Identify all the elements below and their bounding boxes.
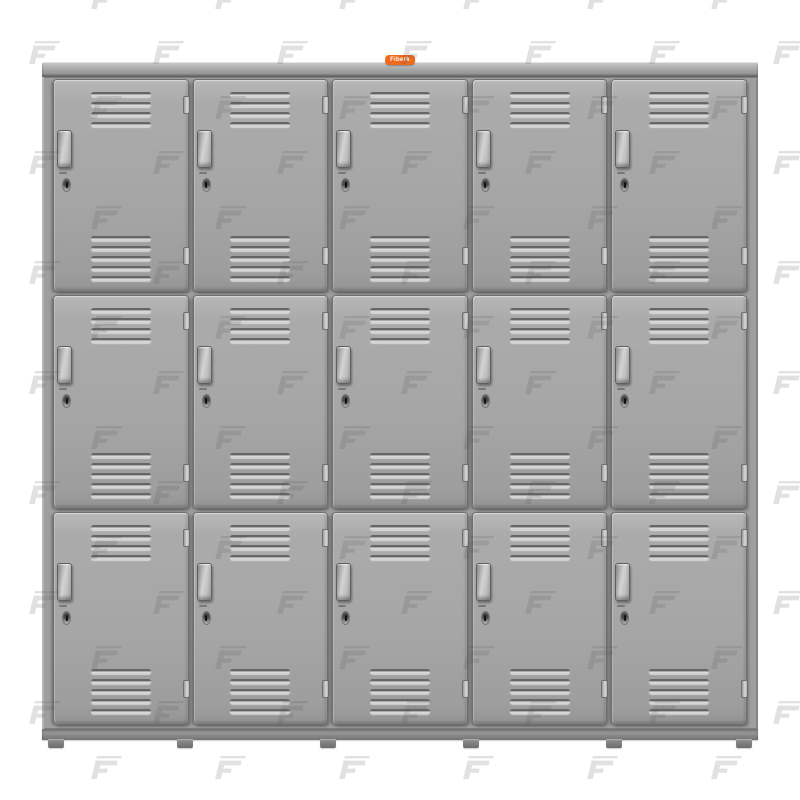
vent-slot — [91, 669, 151, 674]
door-handle — [336, 346, 351, 384]
vent-slot — [510, 689, 570, 694]
top-vent-grille — [91, 92, 151, 127]
vent-slot — [370, 535, 430, 540]
brand-f-watermark-icon — [211, 0, 249, 9]
top-vent-grille — [649, 92, 709, 127]
vent-slot — [91, 246, 151, 251]
vent-slot — [370, 276, 430, 281]
door-handle — [476, 130, 491, 168]
locker-product-photo: Fiberk — [0, 0, 800, 800]
door-handle — [336, 563, 351, 601]
door-hinge — [462, 464, 469, 482]
door-hinge — [601, 464, 608, 482]
door-hinge — [183, 247, 190, 265]
brand-f-watermark-icon — [0, 316, 1, 339]
vent-slot — [370, 338, 430, 343]
vent-slot — [370, 679, 430, 684]
brand-f-watermark-icon — [335, 0, 373, 9]
top-vent-grille — [510, 92, 570, 127]
vent-slot — [230, 256, 290, 261]
door-hinge — [322, 680, 329, 698]
vent-slot — [370, 102, 430, 107]
brand-f-watermark-icon — [87, 756, 125, 779]
locker-door — [54, 80, 188, 291]
vent-slot — [91, 473, 151, 478]
vent-slot — [370, 709, 430, 714]
vent-slot — [649, 453, 709, 458]
bottom-vent-grille — [649, 453, 709, 498]
vent-slot — [91, 689, 151, 694]
locker-door — [333, 513, 467, 724]
door-handle — [57, 346, 72, 384]
locker-foot — [320, 739, 336, 748]
locker-doors-grid — [42, 77, 758, 729]
door-handle — [476, 563, 491, 601]
vent-slot — [370, 525, 430, 530]
door-handle — [615, 346, 630, 384]
vent-slot — [91, 102, 151, 107]
vent-slot — [230, 122, 290, 127]
door-hinge — [322, 529, 329, 547]
door-hinge — [601, 96, 608, 114]
vent-slot — [91, 328, 151, 333]
vent-slot — [510, 338, 570, 343]
vent-slot — [510, 246, 570, 251]
locker-door — [473, 80, 607, 291]
locker-door — [612, 296, 746, 507]
door-handle — [615, 563, 630, 601]
vent-slot — [510, 525, 570, 530]
vent-slot — [649, 112, 709, 117]
vent-slot — [649, 256, 709, 261]
keyhole-lock — [341, 394, 350, 408]
door-hinge — [741, 247, 748, 265]
vent-slot — [649, 669, 709, 674]
vent-slot — [230, 669, 290, 674]
bottom-vent-grille — [91, 669, 151, 714]
top-vent-grille — [230, 92, 290, 127]
top-vent-grille — [91, 525, 151, 560]
door-hinge — [741, 312, 748, 330]
locker-foot — [606, 739, 622, 748]
vent-slot — [91, 276, 151, 281]
brand-f-watermark-icon — [335, 756, 373, 779]
vent-slot — [649, 122, 709, 127]
bottom-vent-grille — [510, 453, 570, 498]
vent-slot — [649, 699, 709, 704]
vent-slot — [370, 112, 430, 117]
vent-slot — [510, 555, 570, 560]
vent-slot — [370, 453, 430, 458]
vent-slot — [91, 463, 151, 468]
vent-slot — [370, 463, 430, 468]
vent-slot — [91, 453, 151, 458]
brand-f-watermark-icon — [0, 206, 1, 229]
vent-slot — [91, 679, 151, 684]
door-hinge — [183, 680, 190, 698]
vent-slot — [649, 236, 709, 241]
vent-slot — [510, 92, 570, 97]
bottom-vent-grille — [370, 236, 430, 281]
vent-slot — [510, 545, 570, 550]
vent-slot — [510, 266, 570, 271]
brand-f-watermark-icon — [769, 261, 800, 284]
brand-f-watermark-icon — [769, 151, 800, 174]
brand-f-watermark-icon — [0, 0, 1, 9]
vent-slot — [91, 236, 151, 241]
keyhole-lock — [481, 611, 490, 625]
vent-slot — [230, 328, 290, 333]
door-hinge — [741, 464, 748, 482]
locker-door — [333, 296, 467, 507]
vent-slot — [230, 525, 290, 530]
vent-slot — [91, 555, 151, 560]
door-hinge — [462, 680, 469, 698]
vent-slot — [230, 545, 290, 550]
brand-f-watermark-icon — [769, 41, 800, 64]
locker-door — [54, 296, 188, 507]
locker-foot — [463, 739, 479, 748]
vent-slot — [370, 92, 430, 97]
door-hinge — [462, 247, 469, 265]
brand-f-watermark-icon — [0, 536, 1, 559]
door-handle — [197, 563, 212, 601]
keyhole-lock — [481, 394, 490, 408]
vent-slot — [370, 246, 430, 251]
vent-slot — [649, 276, 709, 281]
keyhole-lock — [481, 178, 490, 192]
brand-f-watermark-icon — [769, 701, 800, 724]
locker-door — [473, 296, 607, 507]
door-hinge — [322, 464, 329, 482]
top-vent-grille — [510, 525, 570, 560]
vent-slot — [510, 308, 570, 313]
brand-f-watermark-icon — [583, 756, 621, 779]
vent-slot — [510, 112, 570, 117]
vent-slot — [370, 699, 430, 704]
vent-slot — [230, 102, 290, 107]
vent-slot — [510, 453, 570, 458]
brand-f-watermark-icon — [459, 756, 497, 779]
door-handle — [197, 130, 212, 168]
vent-slot — [649, 709, 709, 714]
vent-slot — [230, 699, 290, 704]
vent-slot — [91, 266, 151, 271]
vent-slot — [649, 483, 709, 488]
bottom-vent-grille — [230, 453, 290, 498]
vent-slot — [510, 493, 570, 498]
brand-f-watermark-icon — [211, 756, 249, 779]
vent-slot — [230, 689, 290, 694]
vent-slot — [230, 246, 290, 251]
vent-slot — [370, 689, 430, 694]
brand-f-watermark-icon — [707, 756, 745, 779]
vent-slot — [649, 308, 709, 313]
locker-door — [612, 80, 746, 291]
vent-slot — [370, 669, 430, 674]
top-vent-grille — [370, 525, 430, 560]
brand-f-watermark-icon — [87, 0, 125, 9]
vent-slot — [649, 92, 709, 97]
vent-slot — [649, 545, 709, 550]
vent-slot — [370, 308, 430, 313]
vent-slot — [510, 328, 570, 333]
door-hinge — [462, 312, 469, 330]
brand-f-watermark-icon — [769, 591, 800, 614]
brand-f-watermark-icon — [0, 646, 1, 669]
vent-slot — [230, 473, 290, 478]
keyhole-lock — [202, 394, 211, 408]
locker-unit: Fiberk — [42, 60, 758, 752]
bottom-vent-grille — [510, 236, 570, 281]
brand-f-watermark-icon — [707, 0, 745, 9]
brand-badge: Fiberk — [385, 55, 415, 65]
vent-slot — [370, 236, 430, 241]
door-hinge — [183, 96, 190, 114]
vent-slot — [230, 453, 290, 458]
vent-slot — [370, 545, 430, 550]
top-vent-grille — [230, 308, 290, 343]
bottom-vent-grille — [230, 669, 290, 714]
vent-slot — [370, 483, 430, 488]
vent-slot — [230, 338, 290, 343]
vent-slot — [91, 92, 151, 97]
vent-slot — [370, 493, 430, 498]
vent-slot — [649, 246, 709, 251]
door-hinge — [601, 247, 608, 265]
keyhole-lock — [202, 611, 211, 625]
door-hinge — [322, 96, 329, 114]
keyhole-lock — [620, 611, 629, 625]
vent-slot — [649, 328, 709, 333]
brand-f-watermark-icon — [769, 371, 800, 394]
locker-base-rail — [42, 729, 758, 740]
door-handle — [615, 130, 630, 168]
bottom-vent-grille — [91, 453, 151, 498]
vent-slot — [370, 318, 430, 323]
vent-slot — [510, 256, 570, 261]
vent-slot — [510, 463, 570, 468]
vent-slot — [510, 709, 570, 714]
locker-door — [333, 80, 467, 291]
vent-slot — [370, 122, 430, 127]
vent-slot — [370, 328, 430, 333]
door-handle — [336, 130, 351, 168]
door-hinge — [462, 529, 469, 547]
vent-slot — [370, 555, 430, 560]
bottom-vent-grille — [510, 669, 570, 714]
vent-slot — [91, 483, 151, 488]
locker-door — [54, 513, 188, 724]
door-handle — [57, 563, 72, 601]
keyhole-lock — [341, 178, 350, 192]
vent-slot — [91, 122, 151, 127]
door-hinge — [322, 247, 329, 265]
vent-slot — [230, 236, 290, 241]
vent-slot — [510, 535, 570, 540]
brand-f-watermark-icon — [583, 0, 621, 9]
keyhole-lock — [62, 394, 71, 408]
top-vent-grille — [510, 308, 570, 343]
vent-slot — [230, 318, 290, 323]
vent-slot — [230, 535, 290, 540]
vent-slot — [91, 256, 151, 261]
keyhole-lock — [62, 611, 71, 625]
vent-slot — [649, 102, 709, 107]
vent-slot — [230, 463, 290, 468]
vent-slot — [649, 338, 709, 343]
door-hinge — [601, 680, 608, 698]
vent-slot — [91, 318, 151, 323]
vent-slot — [510, 236, 570, 241]
brand-f-watermark-icon — [459, 0, 497, 9]
vent-slot — [649, 525, 709, 530]
top-vent-grille — [230, 525, 290, 560]
locker-foot — [736, 739, 752, 748]
door-hinge — [741, 529, 748, 547]
vent-slot — [230, 276, 290, 281]
locker-foot — [177, 739, 193, 748]
vent-slot — [91, 308, 151, 313]
vent-slot — [510, 276, 570, 281]
vent-slot — [510, 102, 570, 107]
vent-slot — [510, 699, 570, 704]
door-hinge — [601, 312, 608, 330]
vent-slot — [510, 679, 570, 684]
vent-slot — [649, 555, 709, 560]
vent-slot — [649, 493, 709, 498]
door-hinge — [183, 312, 190, 330]
vent-slot — [510, 122, 570, 127]
vent-slot — [510, 318, 570, 323]
top-vent-grille — [370, 308, 430, 343]
vent-slot — [649, 463, 709, 468]
vent-slot — [510, 669, 570, 674]
bottom-vent-grille — [91, 236, 151, 281]
vent-slot — [649, 318, 709, 323]
vent-slot — [649, 679, 709, 684]
door-hinge — [322, 312, 329, 330]
vent-slot — [510, 483, 570, 488]
top-vent-grille — [649, 525, 709, 560]
vent-slot — [230, 493, 290, 498]
vent-slot — [230, 266, 290, 271]
vent-slot — [230, 112, 290, 117]
vent-slot — [230, 483, 290, 488]
vent-slot — [649, 689, 709, 694]
door-hinge — [741, 96, 748, 114]
locker-door — [194, 80, 328, 291]
door-hinge — [462, 96, 469, 114]
keyhole-lock — [620, 394, 629, 408]
brand-f-watermark-icon — [0, 756, 1, 779]
locker-door — [473, 513, 607, 724]
vent-slot — [230, 555, 290, 560]
bottom-vent-grille — [370, 669, 430, 714]
vent-slot — [230, 92, 290, 97]
door-handle — [197, 346, 212, 384]
door-hinge — [183, 464, 190, 482]
vent-slot — [91, 545, 151, 550]
door-hinge — [741, 680, 748, 698]
vent-slot — [649, 266, 709, 271]
door-handle — [57, 130, 72, 168]
bottom-vent-grille — [649, 669, 709, 714]
locker-foot — [48, 739, 64, 748]
keyhole-lock — [620, 178, 629, 192]
vent-slot — [230, 308, 290, 313]
door-hinge — [183, 529, 190, 547]
locker-door — [194, 296, 328, 507]
brand-f-watermark-icon — [0, 96, 1, 119]
vent-slot — [91, 699, 151, 704]
vent-slot — [370, 473, 430, 478]
vent-slot — [370, 266, 430, 271]
top-vent-grille — [91, 308, 151, 343]
brand-badge-label: Fiberk — [390, 57, 410, 63]
top-vent-grille — [370, 92, 430, 127]
vent-slot — [649, 535, 709, 540]
bottom-vent-grille — [649, 236, 709, 281]
vent-slot — [91, 493, 151, 498]
keyhole-lock — [341, 611, 350, 625]
locker-door — [612, 513, 746, 724]
bottom-vent-grille — [370, 453, 430, 498]
brand-f-watermark-icon — [769, 481, 800, 504]
keyhole-lock — [62, 178, 71, 192]
vent-slot — [370, 256, 430, 261]
door-hinge — [601, 529, 608, 547]
locker-door — [194, 513, 328, 724]
vent-slot — [91, 709, 151, 714]
vent-slot — [230, 679, 290, 684]
door-handle — [476, 346, 491, 384]
vent-slot — [91, 525, 151, 530]
vent-slot — [91, 535, 151, 540]
bottom-vent-grille — [230, 236, 290, 281]
keyhole-lock — [202, 178, 211, 192]
top-vent-grille — [649, 308, 709, 343]
vent-slot — [91, 112, 151, 117]
vent-slot — [91, 338, 151, 343]
vent-slot — [649, 473, 709, 478]
vent-slot — [230, 709, 290, 714]
vent-slot — [510, 473, 570, 478]
brand-f-watermark-icon — [0, 426, 1, 449]
